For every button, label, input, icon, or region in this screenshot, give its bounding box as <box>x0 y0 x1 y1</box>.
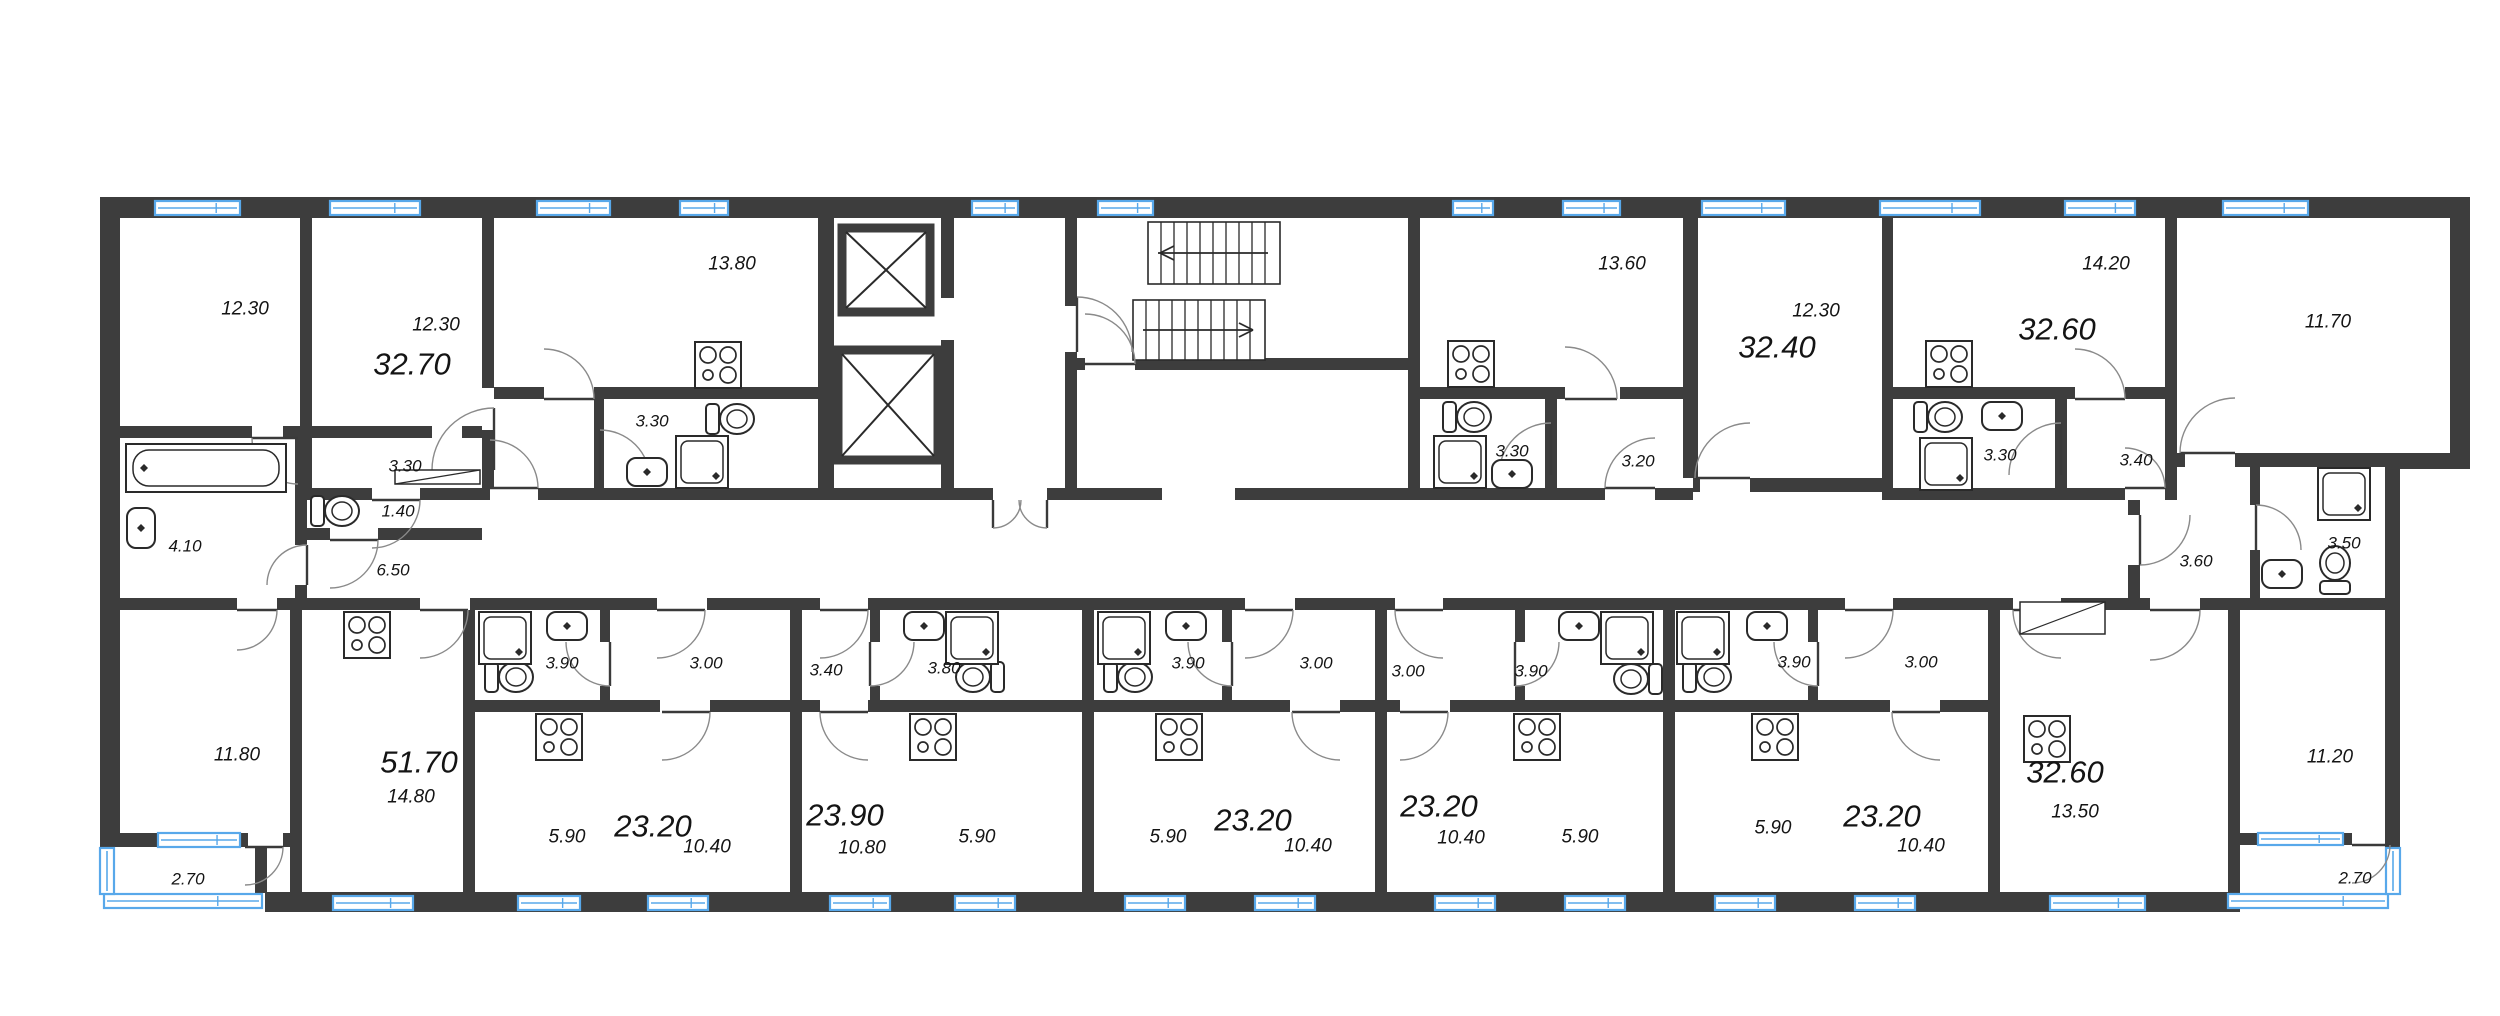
toilet-icon <box>485 662 533 692</box>
wall <box>482 218 494 388</box>
shower-icon <box>1920 438 1972 490</box>
wall <box>1408 488 1557 500</box>
room-area-label: 3.90 <box>1777 653 1811 672</box>
window-icon <box>955 896 1015 910</box>
shower-icon <box>1677 612 1729 664</box>
window-icon <box>972 201 1018 215</box>
room-area-label: 3.40 <box>809 661 843 680</box>
toilet-icon <box>1443 402 1491 432</box>
room-area-label: 10.40 <box>1284 836 1332 857</box>
window-icon <box>2228 894 2388 908</box>
room-area-label: 12.30 <box>221 299 269 320</box>
wall <box>600 610 610 642</box>
wall <box>802 700 820 712</box>
apartment-total-label: 23.20 <box>1213 803 1292 838</box>
sink-icon <box>2262 560 2302 588</box>
wall <box>2140 598 2150 610</box>
wall <box>470 598 478 610</box>
room-area-label: 11.20 <box>2307 747 2354 768</box>
window-icon <box>333 896 413 910</box>
window-icon <box>518 896 580 910</box>
wall <box>868 700 1082 712</box>
room-area-label: 1.40 <box>381 502 415 521</box>
sink-icon <box>1492 460 1532 488</box>
stove-icon <box>1514 714 1560 760</box>
elevator-shaft-icon <box>838 350 938 460</box>
window-icon <box>1563 201 1620 215</box>
wall <box>312 426 432 438</box>
window-icon <box>100 848 114 894</box>
room-area-label: 13.60 <box>1598 254 1646 275</box>
room-area-label: 14.20 <box>2082 254 2130 275</box>
wall <box>1065 218 1077 306</box>
room-area-label: 5.90 <box>1755 818 1792 839</box>
window-icon <box>2223 201 2308 215</box>
room-area-label: 3.00 <box>1391 662 1425 681</box>
room-area-label: 2.70 <box>170 870 205 889</box>
sink-icon <box>627 458 667 486</box>
sink-icon <box>1747 612 1787 640</box>
sink-icon <box>547 612 587 640</box>
wall <box>1893 387 2075 399</box>
wall <box>1387 598 1395 610</box>
room-area-label: 5.90 <box>959 827 996 848</box>
wall <box>2228 610 2240 893</box>
wall <box>2200 598 2400 610</box>
wardrobe-icon <box>2020 602 2105 634</box>
window-icon <box>2050 896 2145 910</box>
sink-icon <box>904 612 944 640</box>
wall <box>818 218 834 500</box>
wall <box>1988 610 2000 892</box>
window-icon <box>1453 201 1493 215</box>
room-area-label: 10.80 <box>838 838 886 859</box>
wall <box>1655 488 1693 500</box>
shower-icon <box>1434 436 1486 488</box>
stove-icon <box>536 714 582 760</box>
wall <box>1693 478 1700 492</box>
window-icon <box>1715 896 1775 910</box>
apartment-total-label: 32.60 <box>2026 755 2104 790</box>
wall <box>295 438 307 545</box>
wall <box>802 598 820 610</box>
wall <box>290 610 302 892</box>
wall <box>283 833 290 847</box>
window-icon <box>1098 201 1153 215</box>
wall <box>2055 488 2125 500</box>
wall <box>1940 700 1988 712</box>
floor-plan: 12.3012.3032.7013.803.303.301.404.106.50… <box>0 0 2500 1016</box>
wall <box>1557 488 1605 500</box>
wall <box>1443 598 1663 610</box>
wall <box>1893 598 2000 610</box>
room-area-label: 12.30 <box>1792 301 1840 322</box>
toilet-icon <box>2320 546 2350 594</box>
apartment-total-label: 32.40 <box>1738 330 1816 365</box>
room-area-label: 10.40 <box>683 837 731 858</box>
window-icon <box>155 201 240 215</box>
wall <box>2250 550 2260 598</box>
wall <box>1340 700 1375 712</box>
window-icon <box>2065 201 2135 215</box>
wall <box>1295 598 1387 610</box>
window-icon <box>648 896 708 910</box>
stove-icon <box>695 342 741 388</box>
room-area-label: 2.70 <box>2337 869 2372 888</box>
floor-plan-canvas: 12.3012.3032.7013.803.303.301.404.106.50… <box>0 0 2500 1016</box>
room-area-label: 5.90 <box>1562 827 1599 848</box>
wall <box>868 598 1082 610</box>
stove-icon <box>1752 714 1798 760</box>
wall <box>1683 218 1698 478</box>
wall <box>494 387 544 399</box>
wall <box>120 833 158 847</box>
stove-icon <box>1156 714 1202 760</box>
wall <box>1082 598 1245 610</box>
wall <box>2235 453 2470 467</box>
toilet-icon <box>1614 664 1662 694</box>
wall <box>870 610 880 642</box>
shower-icon <box>1098 612 1150 664</box>
sink-icon <box>127 508 155 548</box>
wall <box>475 700 610 712</box>
room-area-label: 13.80 <box>708 254 756 275</box>
wall <box>838 488 993 500</box>
window-icon <box>1702 201 1785 215</box>
shower-icon <box>479 612 531 664</box>
room-area-label: 3.30 <box>635 412 669 431</box>
room-area-label: 11.80 <box>214 745 261 766</box>
wall <box>1094 700 1290 712</box>
apartment-total-label: 32.70 <box>373 347 451 382</box>
wall <box>1420 387 1565 399</box>
room-area-label: 3.90 <box>1514 662 1548 681</box>
toilet-icon <box>311 496 359 526</box>
sink-icon <box>1559 612 1599 640</box>
toilet-icon <box>1683 662 1731 692</box>
room-area-label: 3.00 <box>1904 653 1938 672</box>
window-icon <box>1125 896 1185 910</box>
apartment-total-label: 32.60 <box>2018 312 2096 347</box>
stairs-icon <box>1133 300 1265 360</box>
room-area-label: 3.00 <box>1299 654 1333 673</box>
sink-icon <box>1166 612 1206 640</box>
apartment-total-label: 23.20 <box>613 809 692 844</box>
room-area-label: 10.40 <box>1897 836 1945 857</box>
wall <box>466 488 490 500</box>
wall <box>1663 598 1845 610</box>
wall <box>300 218 312 442</box>
room-area-label: 13.50 <box>2051 802 2099 823</box>
window-icon <box>1255 896 1315 910</box>
stove-icon <box>1926 341 1972 387</box>
wall <box>462 426 482 438</box>
wall <box>1065 352 1077 488</box>
room-area-label: 3.40 <box>2119 451 2153 470</box>
wall <box>2385 467 2400 893</box>
wall <box>790 610 802 892</box>
room-area-label: 10.40 <box>1437 828 1485 849</box>
window-icon <box>2258 833 2343 845</box>
window-icon <box>104 894 262 908</box>
wall <box>1235 488 1408 500</box>
wall <box>463 610 475 892</box>
window-icon <box>680 201 728 215</box>
room-area-label: 6.50 <box>376 561 410 580</box>
wall <box>1663 610 1675 892</box>
toilet-icon <box>1104 662 1152 692</box>
wall <box>1893 488 2055 500</box>
wall <box>120 426 252 438</box>
room-area-label: 3.80 <box>927 659 961 678</box>
wall <box>1375 610 1387 892</box>
wall <box>2128 565 2140 598</box>
room-area-label: 3.90 <box>545 654 579 673</box>
window-icon <box>537 201 610 215</box>
toilet-icon <box>956 662 1004 692</box>
apartment-total-label: 23.90 <box>805 798 884 833</box>
wall <box>1882 218 1893 500</box>
toilet-icon <box>706 404 754 434</box>
wall <box>1068 488 1162 500</box>
room-area-label: 5.90 <box>1150 827 1187 848</box>
wall <box>1515 610 1525 642</box>
wall <box>277 598 302 610</box>
wall <box>1620 387 1683 399</box>
wall <box>120 598 237 610</box>
toilet-icon <box>1914 402 1962 432</box>
wall <box>1047 488 1068 500</box>
room-area-label: 4.10 <box>168 537 202 556</box>
window-icon <box>1880 201 1980 215</box>
wall <box>2000 598 2013 610</box>
wall <box>2125 387 2165 399</box>
wall <box>1408 218 1420 488</box>
wall <box>1675 700 1890 712</box>
window-icon <box>1435 896 1495 910</box>
room-area-label: 11.70 <box>2305 312 2352 333</box>
window-icon <box>158 833 240 847</box>
elevator-shaft-icon <box>842 228 930 312</box>
stairs-icon <box>1148 222 1280 284</box>
wall <box>1387 700 1400 712</box>
wall <box>378 528 482 540</box>
shower-icon <box>2318 468 2370 520</box>
stove-icon <box>344 612 390 658</box>
wall <box>538 488 594 500</box>
room-area-label: 3.20 <box>1621 452 1655 471</box>
room-area-label: 3.30 <box>1983 446 2017 465</box>
wall <box>2250 467 2260 505</box>
shower-icon <box>946 612 998 664</box>
room-area-label: 5.90 <box>549 827 586 848</box>
wall <box>478 598 657 610</box>
wall <box>1450 700 1663 712</box>
wall <box>2165 218 2177 453</box>
wall <box>1750 478 1893 492</box>
room-area-label: 3.50 <box>2327 534 2361 553</box>
wall <box>941 218 954 298</box>
wall <box>1077 358 1085 370</box>
room-area-label: 3.00 <box>689 654 723 673</box>
wall <box>2390 833 2400 845</box>
window-icon <box>1565 896 1625 910</box>
wall <box>1082 610 1094 892</box>
wall <box>707 598 802 610</box>
sink-icon <box>1982 402 2022 430</box>
wall <box>255 847 267 893</box>
stove-icon <box>910 714 956 760</box>
room-area-label: 3.30 <box>388 457 422 476</box>
window-icon <box>330 201 420 215</box>
wall <box>710 700 790 712</box>
wall <box>283 426 300 438</box>
apartment-total-label: 23.20 <box>1399 789 1478 824</box>
wall <box>2175 453 2185 467</box>
room-area-label: 14.80 <box>387 787 435 808</box>
shower-icon <box>1601 612 1653 664</box>
wall <box>2128 500 2140 515</box>
stove-icon <box>1448 341 1494 387</box>
wall <box>302 598 420 610</box>
apartment-total-label: 23.20 <box>1842 799 1921 834</box>
wall <box>1808 610 1818 642</box>
bathtub-icon <box>126 444 286 492</box>
room-area-label: 3.90 <box>1171 654 1205 673</box>
room-area-label: 3.60 <box>2179 552 2213 571</box>
wall <box>594 488 838 500</box>
room-area-label: 3.30 <box>1495 442 1529 461</box>
wall <box>1222 610 1232 642</box>
wall <box>2450 197 2470 467</box>
apartment-total-label: 51.70 <box>380 745 458 780</box>
wall <box>240 833 248 847</box>
wall <box>482 430 494 488</box>
window-icon <box>830 896 890 910</box>
wall <box>100 197 120 847</box>
wall <box>610 700 660 712</box>
wall <box>941 340 954 488</box>
floor-layer <box>0 0 2500 1016</box>
window-icon <box>1855 896 1915 910</box>
room-area-label: 12.30 <box>412 315 460 336</box>
shower-icon <box>676 436 728 488</box>
wall <box>2165 488 2175 500</box>
